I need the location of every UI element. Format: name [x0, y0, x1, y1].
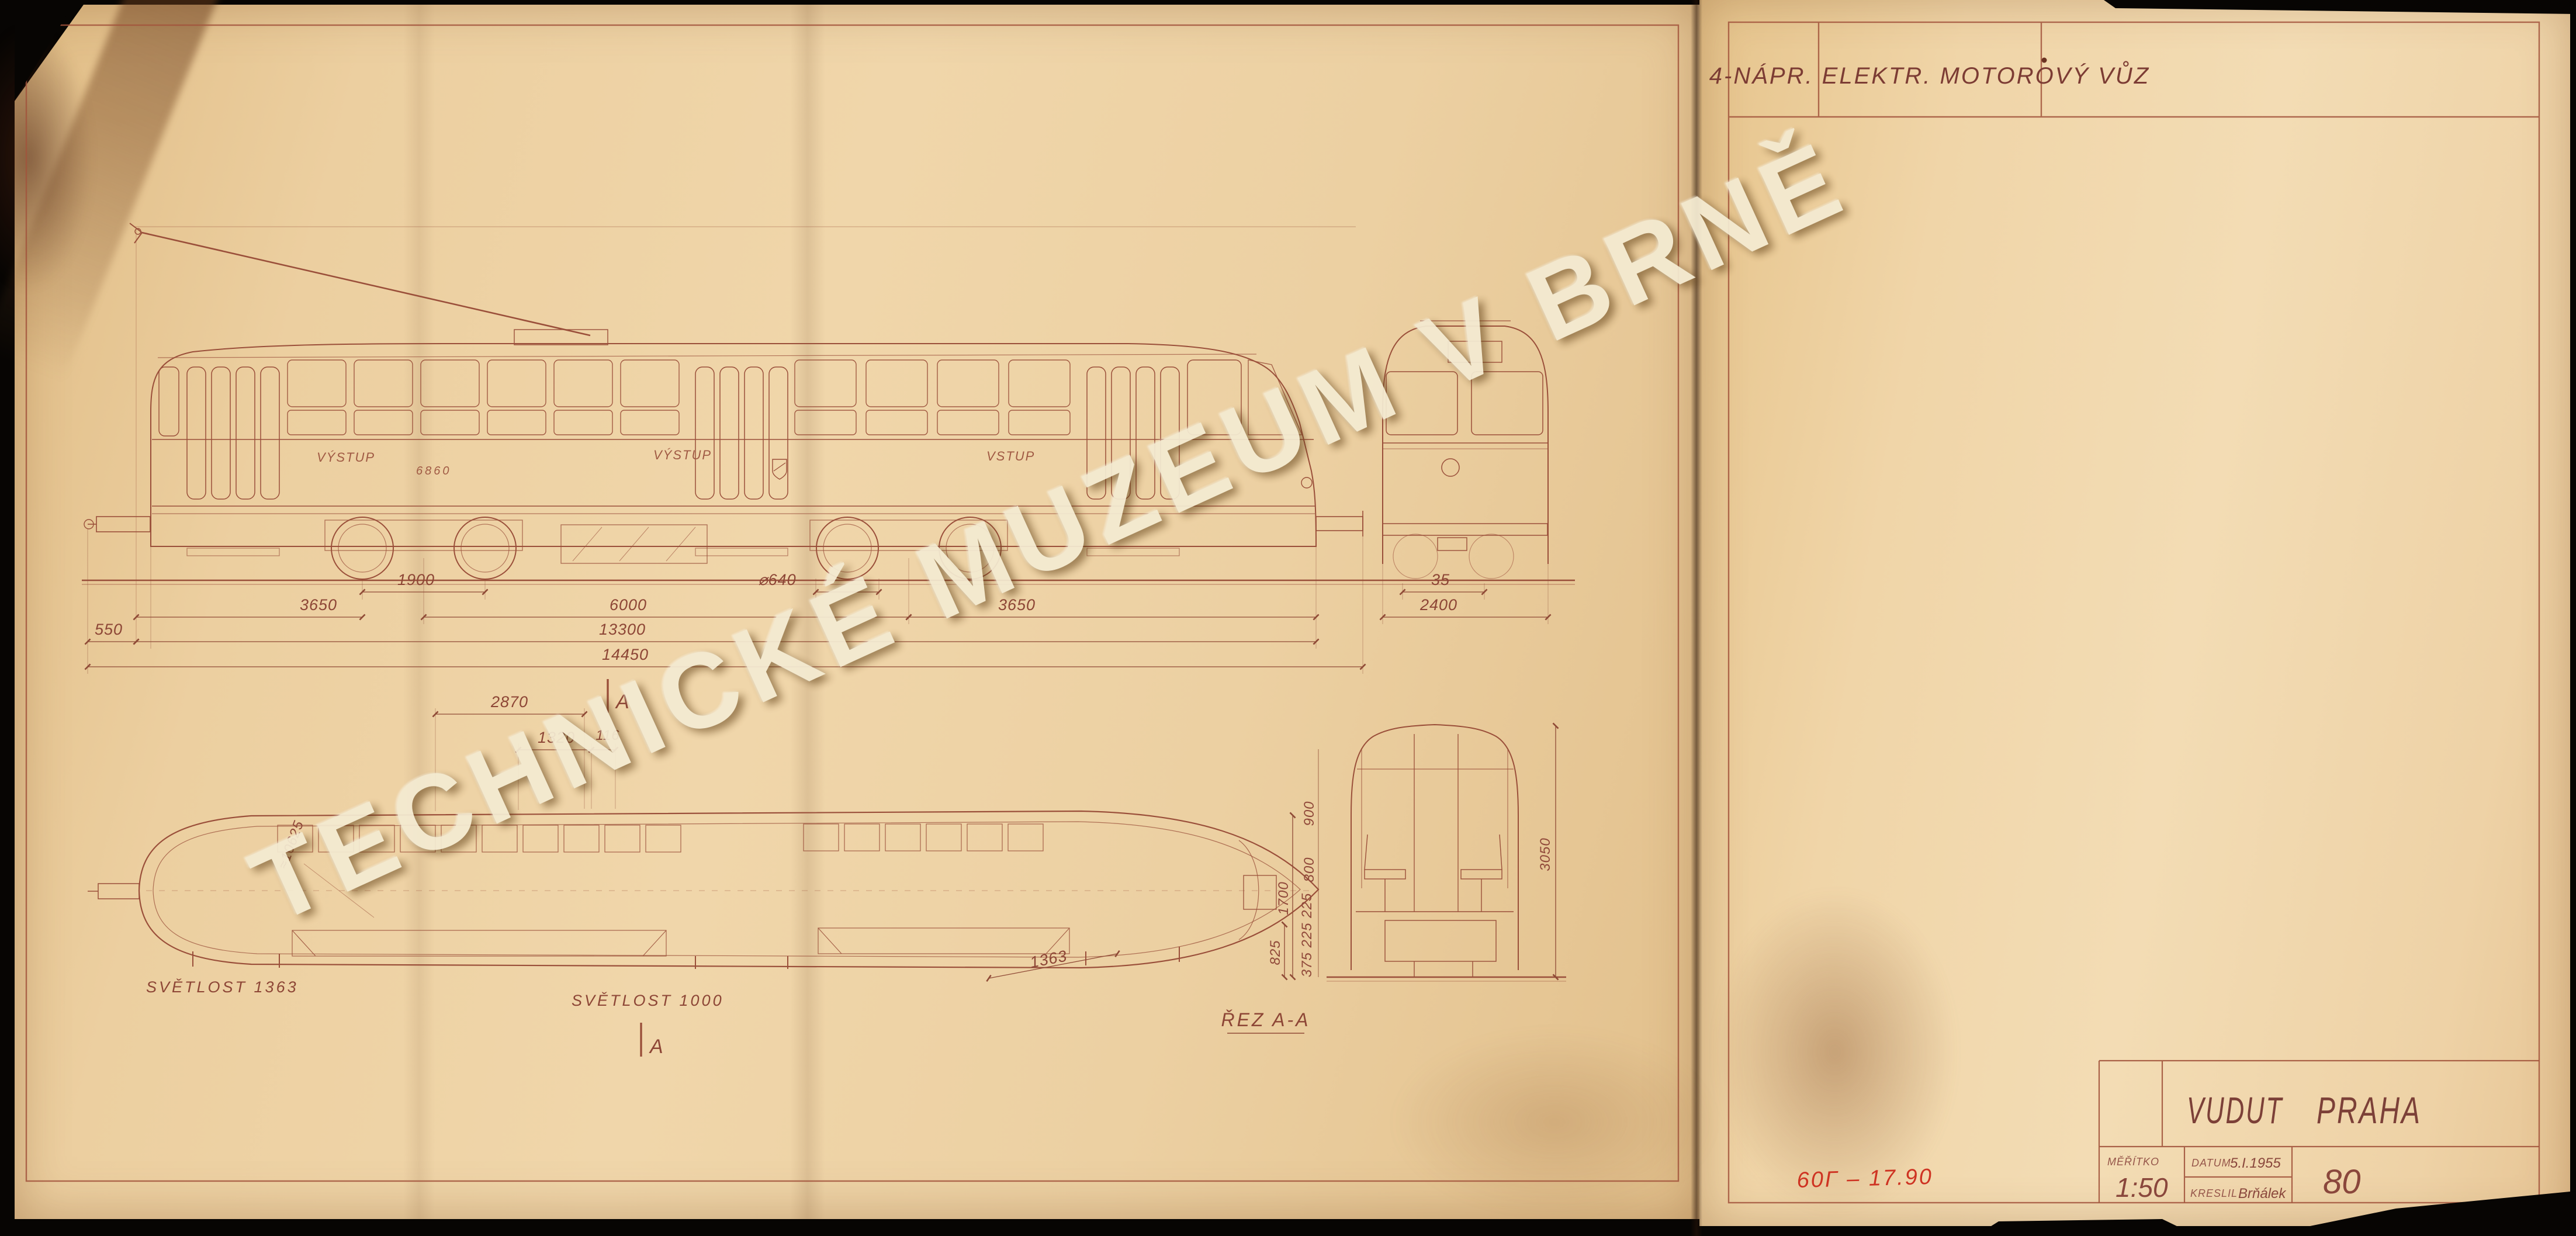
scanned-drawing-canvas: VÝSTUP 6860 VÝSTUP VSTUP — [0, 0, 2576, 1236]
scan-tears — [0, 0, 2576, 1236]
